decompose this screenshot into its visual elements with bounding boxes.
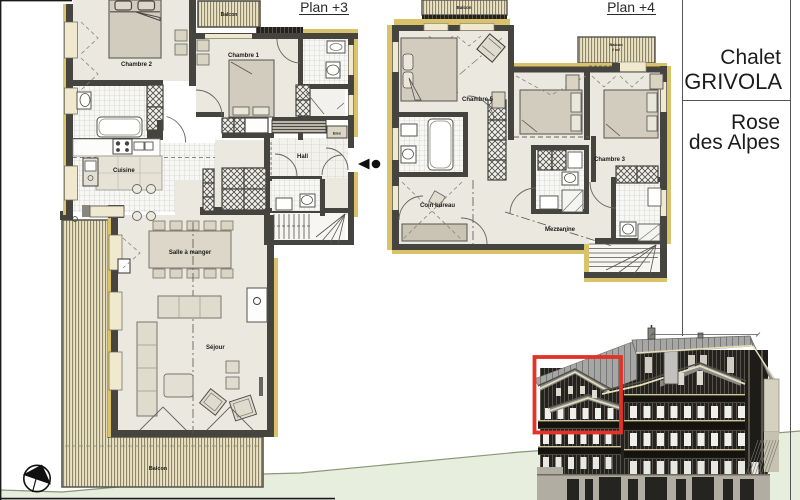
svg-text:des Alpes: des Alpes — [689, 131, 780, 154]
svg-text:Chambre 1: Chambre 1 — [228, 53, 260, 59]
svg-text:Séjour: Séjour — [206, 345, 225, 351]
svg-text:Coin bureau: Coin bureau — [420, 203, 455, 209]
svg-text:Cuisine: Cuisine — [113, 168, 135, 174]
svg-text:Balcon: Balcon — [456, 5, 471, 10]
svg-text:GRIVOLA: GRIVOLA — [684, 69, 782, 94]
svg-text:Elec: Elec — [333, 131, 342, 136]
svg-text:Chambre 2: Chambre 2 — [121, 62, 153, 68]
svg-text:Balcon: Balcon — [221, 12, 238, 18]
svg-text:Hall: Hall — [297, 154, 308, 160]
svg-text:Chalet: Chalet — [720, 46, 781, 69]
svg-text:Balcon: Balcon — [609, 42, 623, 47]
svg-text:Plan +4: Plan +4 — [607, 0, 655, 15]
svg-text:2 m2: 2 m2 — [612, 48, 620, 52]
svg-text:Salle à manger: Salle à manger — [169, 250, 212, 256]
svg-text:Chambre 3: Chambre 3 — [594, 157, 626, 163]
svg-text:Plan +3: Plan +3 — [300, 0, 348, 15]
svg-text:Balcon: Balcon — [149, 466, 168, 472]
